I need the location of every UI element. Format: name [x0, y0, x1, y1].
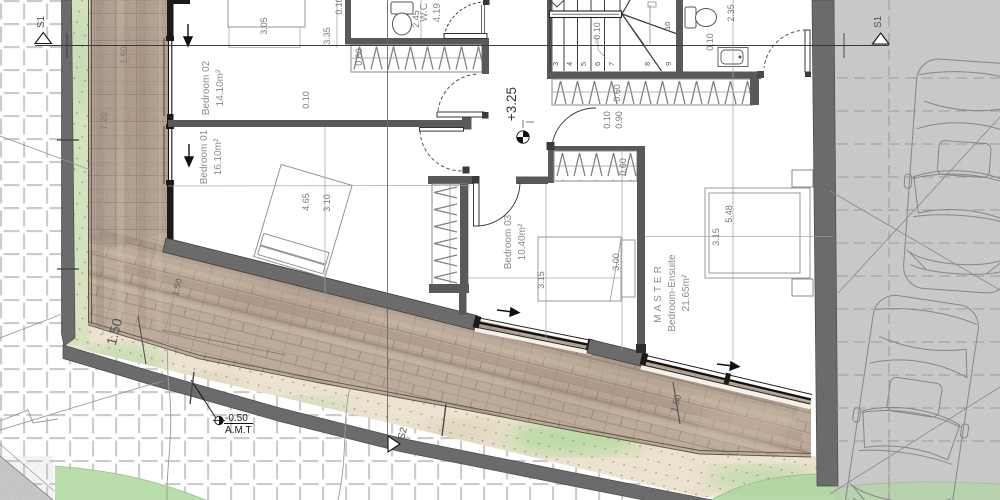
svg-text:3.15: 3.15 — [711, 228, 721, 246]
svg-text:3.05: 3.05 — [259, 17, 269, 35]
svg-text:1.50: 1.50 — [119, 46, 129, 64]
svg-text:2.45: 2.45 — [411, 10, 421, 28]
svg-text:0.10: 0.10 — [334, 0, 344, 15]
svg-text:0.60: 0.60 — [612, 84, 622, 102]
svg-text:0.90: 0.90 — [614, 111, 624, 129]
svg-text:5: 5 — [579, 62, 588, 66]
svg-text:14.10m²: 14.10m² — [215, 69, 226, 106]
svg-text:Bedroom 03: Bedroom 03 — [503, 214, 514, 269]
svg-text:5.48: 5.48 — [724, 205, 734, 223]
svg-text:3.10: 3.10 — [322, 194, 332, 212]
svg-text:16.10m²: 16.10m² — [213, 138, 224, 175]
svg-text:-0.50: -0.50 — [225, 413, 248, 424]
svg-text:3.15: 3.15 — [536, 271, 546, 289]
svg-text:Bedroom 01: Bedroom 01 — [199, 129, 210, 184]
svg-text:0.10: 0.10 — [602, 111, 612, 129]
svg-text:0.10: 0.10 — [592, 22, 602, 40]
svg-text:7: 7 — [607, 62, 616, 66]
svg-text:0.60: 0.60 — [618, 158, 628, 176]
svg-text:6: 6 — [593, 62, 602, 66]
svg-text:A.M.T: A.M.T — [225, 425, 252, 436]
svg-text:4.65: 4.65 — [301, 193, 311, 211]
svg-text:0.60: 0.60 — [354, 48, 364, 66]
svg-text:0.10: 0.10 — [705, 33, 715, 51]
svg-text:7.20: 7.20 — [99, 112, 109, 130]
svg-text:Bedroom-Ensuite: Bedroom-Ensuite — [667, 254, 678, 332]
svg-text:2.35: 2.35 — [726, 4, 736, 22]
svg-text:+3.25: +3.25 — [504, 87, 519, 121]
svg-text:3.00: 3.00 — [611, 253, 621, 271]
svg-text:9: 9 — [664, 62, 673, 66]
svg-text:S1: S1 — [36, 15, 47, 28]
svg-text:10.40m²: 10.40m² — [517, 223, 528, 260]
svg-text:0.10: 0.10 — [301, 91, 311, 109]
svg-text:10: 10 — [663, 22, 672, 30]
svg-text:3.35: 3.35 — [322, 27, 332, 45]
svg-text:MASTER: MASTER — [653, 263, 664, 323]
svg-text:3: 3 — [551, 62, 560, 66]
svg-text:8: 8 — [643, 62, 652, 66]
svg-text:21.65m²: 21.65m² — [681, 274, 692, 311]
svg-text:Bedroom 02: Bedroom 02 — [201, 60, 212, 115]
svg-text:4.19: 4.19 — [432, 3, 443, 23]
svg-text:4: 4 — [565, 62, 574, 66]
svg-text:S1: S1 — [873, 15, 884, 28]
